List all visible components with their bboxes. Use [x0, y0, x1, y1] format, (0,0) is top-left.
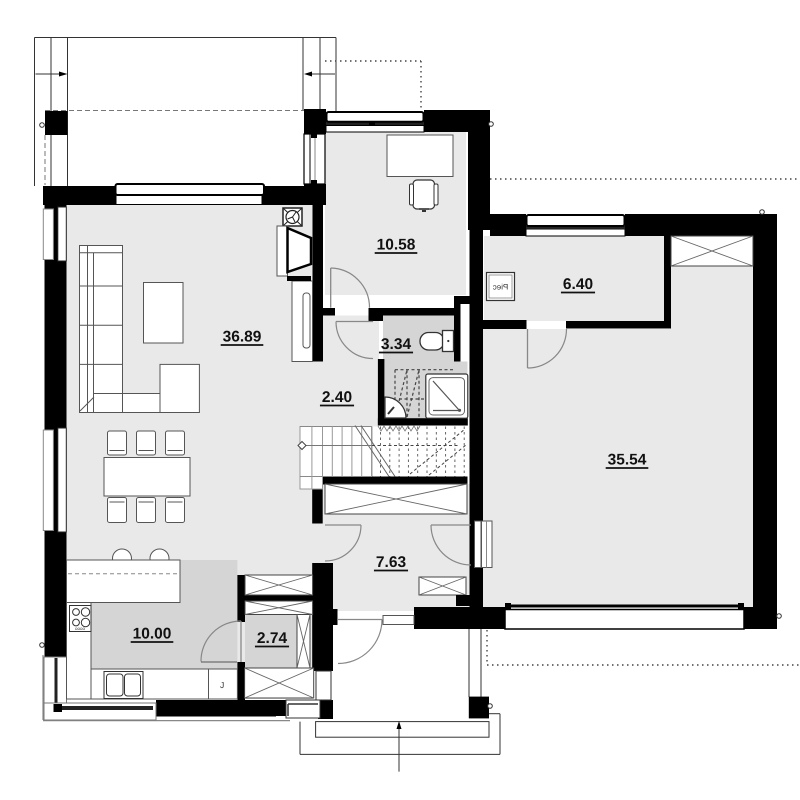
svg-text:10.58: 10.58 [377, 237, 416, 254]
svg-text:oooo: oooo [75, 626, 86, 631]
svg-text:2.40: 2.40 [322, 389, 352, 406]
svg-text:10.00: 10.00 [133, 626, 172, 643]
svg-text:7.63: 7.63 [376, 554, 407, 571]
svg-text:3.34: 3.34 [381, 336, 412, 353]
svg-text:6.40: 6.40 [563, 276, 593, 293]
svg-text:36.89: 36.89 [223, 329, 262, 346]
svg-text:J: J [220, 680, 224, 690]
svg-text:Piec: Piec [493, 283, 509, 292]
svg-text:35.54: 35.54 [608, 452, 647, 469]
svg-text:2.74: 2.74 [257, 630, 288, 647]
